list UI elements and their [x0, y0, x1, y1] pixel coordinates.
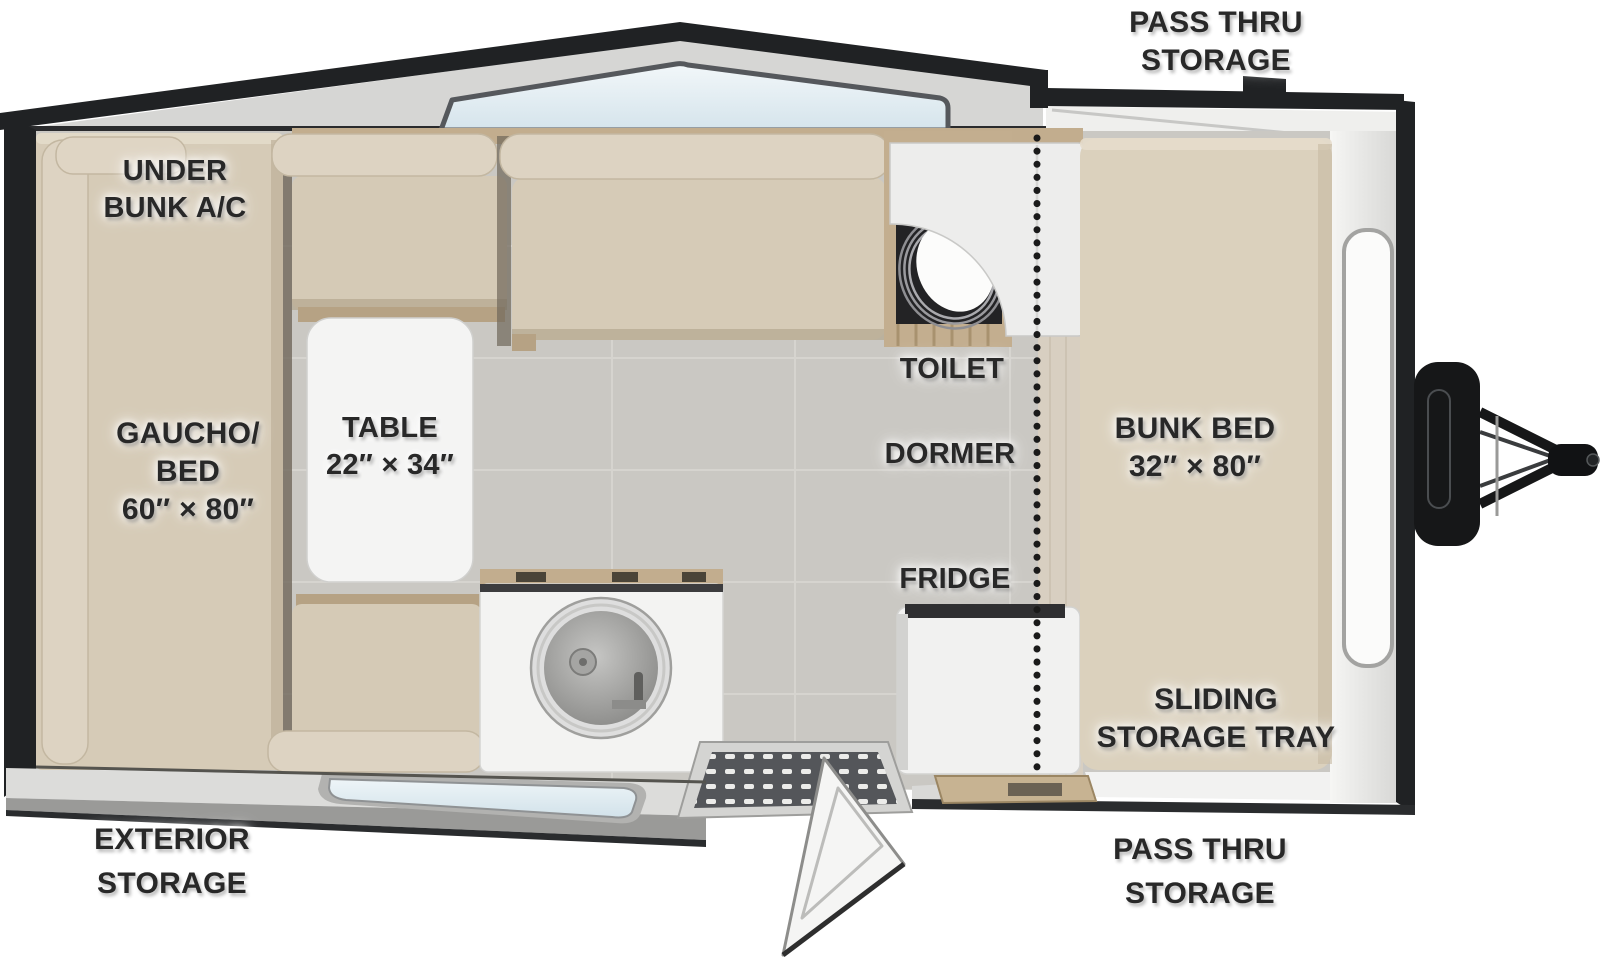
hitch-assembly [1414, 362, 1599, 546]
label-line: TABLE [290, 410, 490, 447]
label-line: BED [68, 453, 308, 491]
label-line: DORMER [850, 436, 1050, 473]
toilet-cabinet [884, 131, 1084, 347]
entry-threshold-tray [935, 776, 1096, 803]
label-line: STORAGE TRAY [1066, 719, 1366, 757]
dinette-bottom-bench [268, 594, 484, 772]
label-table: TABLE 22″ × 34″ [290, 410, 490, 483]
label-line: PASS THRU [1076, 4, 1356, 42]
label-line: STORAGE [32, 862, 312, 906]
label-under-bunk-ac: UNDER BUNK A/C [55, 153, 295, 226]
hitch-ball [1587, 454, 1599, 466]
label-line: 22″ × 34″ [290, 447, 490, 484]
label-line: GAUCHO/ [68, 415, 308, 453]
label-bunk-bed: BUNK BED 32″ × 80″ [1075, 410, 1315, 486]
dinette-top-bench [272, 134, 507, 322]
label-line: 32″ × 80″ [1075, 448, 1315, 486]
propane-cover [1414, 362, 1480, 546]
label-dormer: DORMER [850, 436, 1050, 473]
label-pass-thru-storage-top: PASS THRU STORAGE [1076, 4, 1356, 80]
sofa [497, 134, 890, 351]
label-line: BUNK BED [1075, 410, 1315, 448]
label-gaucho-bed: GAUCHO/ BED 60″ × 80″ [68, 415, 308, 528]
sink [531, 598, 671, 738]
fridge-box [897, 604, 1080, 774]
label-pass-thru-storage-bottom: PASS THRU STORAGE [1060, 828, 1340, 915]
label-exterior-storage: EXTERIOR STORAGE [32, 818, 312, 905]
rear-wall [4, 114, 36, 797]
label-toilet: TOILET [852, 351, 1052, 388]
label-line: UNDER [55, 153, 295, 190]
label-line: PASS THRU [1060, 828, 1340, 872]
front-right-wall [1396, 100, 1415, 814]
label-line: SLIDING [1066, 681, 1366, 719]
label-line: STORAGE [1060, 872, 1340, 916]
label-fridge: FRIDGE [855, 561, 1055, 598]
label-line: BUNK A/C [55, 190, 295, 227]
front-window [1344, 230, 1392, 666]
sink-cabinet [480, 569, 723, 772]
label-line: TOILET [852, 351, 1052, 388]
label-line: EXTERIOR [32, 818, 312, 862]
faucet-spout [612, 700, 646, 709]
entry-step-mat [678, 742, 912, 818]
label-line: 60″ × 80″ [68, 491, 308, 529]
label-sliding-storage-tray: SLIDING STORAGE TRAY [1066, 681, 1366, 757]
label-line: STORAGE [1076, 42, 1356, 80]
floorplan-canvas: PASS THRU STORAGE UNDER BUNK A/C GAUCHO/… [0, 0, 1600, 966]
label-line: FRIDGE [855, 561, 1055, 598]
